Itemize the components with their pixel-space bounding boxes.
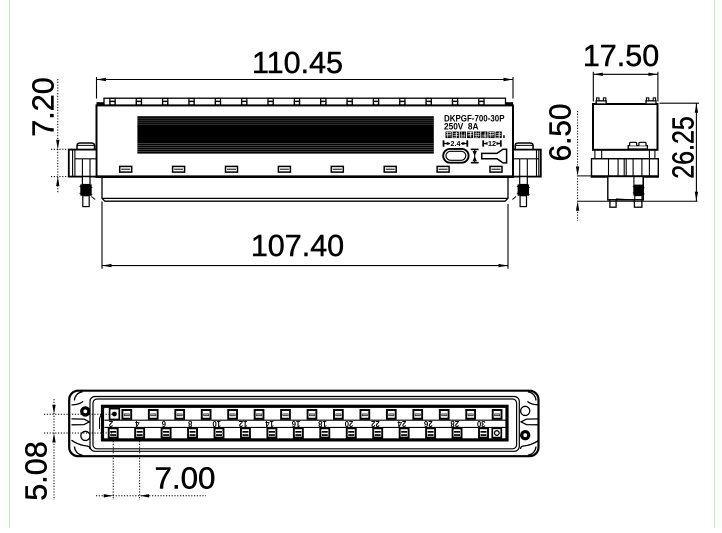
svg-text:7.00: 7.00 [155,462,216,496]
svg-text:14: 14 [265,419,274,428]
svg-text:28: 28 [450,419,459,428]
svg-text:26.25: 26.25 [667,116,701,179]
svg-text:26: 26 [423,419,432,428]
svg-text:18: 18 [318,419,327,428]
svg-text:10: 10 [212,419,221,428]
svg-text:107.40: 107.40 [251,229,344,263]
svg-text:2: 2 [108,419,113,428]
svg-text:250V 8A: 250V 8A [444,122,479,132]
svg-text:24: 24 [397,419,406,428]
svg-text:110.45: 110.45 [252,46,343,80]
svg-text:8: 8 [187,419,192,428]
svg-text:30: 30 [476,419,485,428]
svg-text:6: 6 [161,419,166,428]
svg-text:17.50: 17.50 [583,39,659,73]
svg-text:5.08: 5.08 [20,441,54,500]
svg-text:2.4: 2.4 [451,139,461,148]
svg-text:6.50: 6.50 [544,104,578,162]
svg-text:22: 22 [370,419,379,428]
svg-text:4: 4 [135,419,140,428]
svg-text:20: 20 [344,419,353,428]
svg-text:16: 16 [291,419,300,428]
svg-text:7.20: 7.20 [27,77,61,136]
svg-text:12: 12 [488,139,496,148]
svg-text:12: 12 [238,419,247,428]
